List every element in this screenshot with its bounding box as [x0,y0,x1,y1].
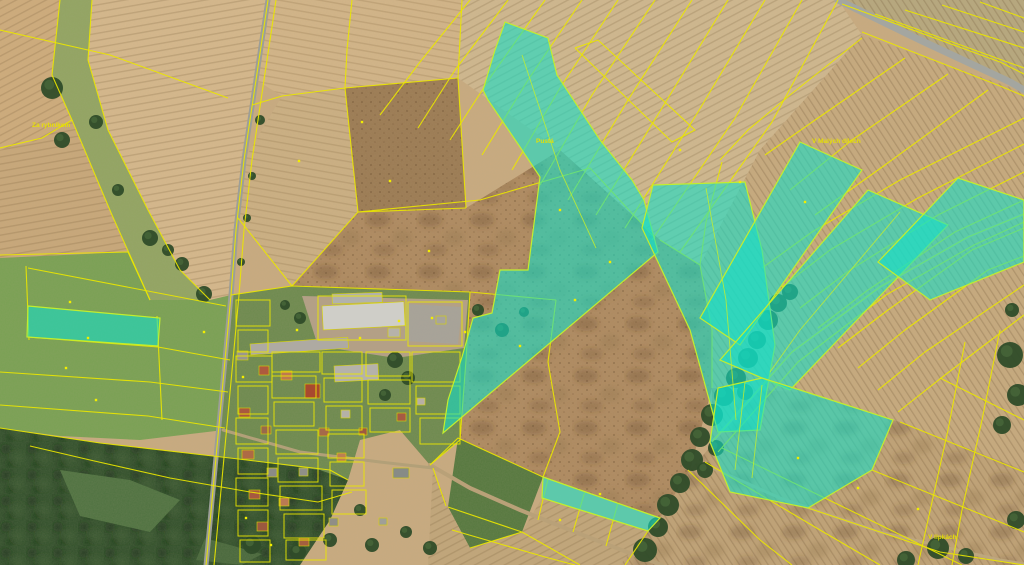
tree-highlight [673,476,682,485]
tree-highlight [144,232,151,239]
building [417,398,425,405]
tree-highlight [296,314,301,319]
tree-highlight [930,540,940,550]
parcel-point-marker [559,209,561,211]
parcel-point-marker [203,331,205,333]
parcel-point-marker [69,301,71,303]
building [341,410,350,418]
tree-highlight [699,464,706,471]
parcel-point-marker [609,261,611,263]
building [334,364,379,382]
parcel-point-marker [389,180,391,182]
tree-highlight [114,186,119,191]
parcel-point-marker [245,517,247,519]
cadastral-map-canvas: Za rybníkemPustáV Malých dílechV lipkách [0,0,1024,565]
parcel-point-marker [359,337,361,339]
tree-highlight [246,538,254,546]
parcel-point-marker [804,201,806,203]
parcel-point-marker [857,487,859,489]
locality-label: Pustá [536,138,554,145]
tree-highlight [474,306,479,311]
tree-highlight [693,430,702,439]
tree-highlight [1010,387,1020,397]
tree-highlight [177,259,183,265]
parcel-point-marker [739,181,741,183]
tree-highlight [425,543,431,549]
tree-highlight [91,117,97,123]
building [242,450,254,459]
building [393,468,409,478]
map-viewport[interactable]: Za rybníkemPustáV Malých dílechV lipkách [0,0,1024,565]
building [305,384,320,398]
building [299,468,308,476]
parcel-point-marker [270,544,272,546]
tree-highlight [900,553,908,561]
parcel-point-marker [296,329,298,331]
parcel-point-marker [519,345,521,347]
tree-highlight [1010,513,1018,521]
parcel-point-marker [361,121,363,123]
locality-label: V Malých dílech [812,138,861,145]
parcel-point-marker [65,367,67,369]
building [261,426,271,434]
parcel-point-marker [917,508,919,510]
tree-highlight [282,301,287,306]
building [436,316,446,324]
tree-highlight [1007,305,1013,311]
tree-highlight [684,452,694,462]
parcel-point-marker [298,160,300,162]
building [388,328,400,337]
tree-highlight [402,528,407,533]
parcel-point-marker [95,399,97,401]
tree-highlight [292,546,299,553]
tree-highlight [660,497,670,507]
building [337,453,346,461]
parcel-point-marker [559,519,561,521]
building [322,302,405,330]
locality-label: Za rybníkem [32,122,71,129]
building [397,413,406,421]
building [259,366,269,375]
building [379,518,387,525]
tree-highlight [381,391,386,396]
building [332,292,382,304]
parcel-point-marker [464,331,466,333]
tree-highlight [1001,345,1013,357]
parcel-point-marker [242,376,244,378]
tree-highlight [44,80,54,90]
parcel-point-marker [428,250,430,252]
parcel-point-marker [797,457,799,459]
tree-highlight [389,354,396,361]
parcel-point-marker [599,493,601,495]
building [257,522,268,531]
parcel-point-marker [574,299,576,301]
parcel-point-marker [431,317,433,319]
building [329,518,338,526]
building [249,490,260,499]
building [239,408,250,417]
tree-highlight [356,506,361,511]
locality-label: V lipkách [928,534,957,541]
parcel-point-marker [398,320,400,322]
building [299,538,309,546]
tree-highlight [56,134,63,141]
tree-highlight [996,418,1004,426]
tree-highlight [367,540,373,546]
parcel-point-marker [679,149,681,151]
parcel-point-marker [87,337,89,339]
